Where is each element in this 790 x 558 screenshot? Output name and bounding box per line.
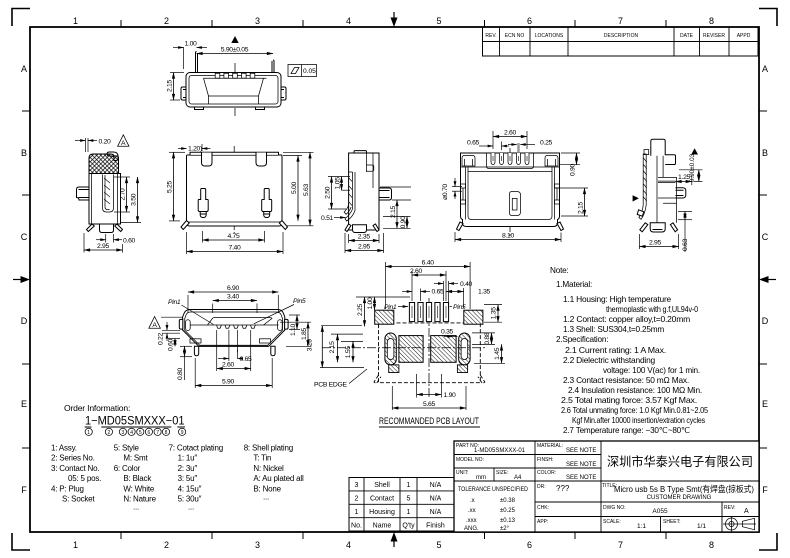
svg-text:6.90: 6.90 (227, 285, 240, 292)
svg-text:E: E (21, 399, 27, 409)
svg-text:2.15: 2.15 (578, 201, 585, 214)
svg-text:2: 2 (164, 540, 169, 550)
svg-text:2.70: 2.70 (120, 188, 127, 201)
svg-text:3: 3 (255, 16, 260, 26)
svg-text:Kgf Min.after 10000 insertion/: Kgf Min.after 10000 insertion/extration … (572, 416, 705, 425)
svg-text:1: 1 (407, 509, 411, 516)
svg-text:1: 1 (87, 430, 90, 436)
svg-text:DR:: DR: (537, 484, 546, 490)
svg-text:A: A (21, 64, 27, 74)
svg-text:RECOMMANDED PCB LAYOUT: RECOMMANDED PCB LAYOUT (379, 416, 479, 427)
svg-text:8: 8 (709, 540, 714, 550)
svg-text:1: Assy.: 1: Assy. (51, 444, 77, 453)
svg-text:1: 1 (407, 482, 411, 489)
svg-text:2.60: 2.60 (222, 362, 235, 369)
svg-text:3.20: 3.20 (307, 339, 314, 352)
svg-text:...: ... (188, 503, 194, 512)
svg-text:0.65: 0.65 (240, 356, 253, 363)
svg-text:DESCRIPTION: DESCRIPTION (604, 33, 639, 39)
svg-text:2.15: 2.15 (390, 205, 397, 218)
svg-text:2.7 Temperature range: −30℃~80: 2.7 Temperature range: −30℃~80℃ (563, 426, 690, 435)
svg-text:S: Socket: S: Socket (62, 495, 95, 504)
svg-text:No.: No. (351, 523, 362, 530)
svg-text:SIZE:: SIZE: (496, 470, 509, 476)
svg-text:1: 1u″: 1: 1u″ (178, 454, 198, 463)
svg-text:D: D (21, 316, 28, 326)
svg-text:0.60: 0.60 (168, 338, 175, 351)
svg-text:6: 6 (527, 16, 532, 26)
svg-text:Housing: Housing (369, 509, 395, 516)
svg-text:1.45: 1.45 (494, 347, 501, 360)
svg-text:8: Shell plating: 8: Shell plating (244, 444, 293, 453)
svg-text:2.35: 2.35 (358, 234, 371, 241)
svg-text:2.60: 2.60 (410, 268, 423, 275)
svg-text:0.20: 0.20 (99, 139, 112, 146)
svg-text:4: 4 (346, 540, 351, 550)
svg-text:±2°: ±2° (500, 526, 510, 532)
svg-text:B: Black: B: Black (123, 474, 152, 483)
svg-text:9: 9 (181, 430, 184, 436)
svg-text:Pin5: Pin5 (293, 298, 306, 305)
svg-text:2.Specification:: 2.Specification: (556, 335, 608, 344)
svg-text:1−MD05SMXXX−01: 1−MD05SMXXX−01 (85, 416, 185, 428)
svg-text:C: C (762, 232, 769, 242)
svg-text:Note:: Note: (550, 266, 569, 275)
svg-text:2.1 Current rating: 1 A Max.: 2.1 Current rating: 1 A Max. (565, 346, 666, 355)
svg-text:SEE NOTE: SEE NOTE (566, 448, 596, 454)
svg-text:2.95: 2.95 (649, 240, 662, 247)
svg-text:FINSH:: FINSH: (537, 457, 553, 463)
svg-text:.x: .x (470, 498, 475, 504)
svg-text:Micro usb 5s B Type Smt(有焊盘(掠板: Micro usb 5s B Type Smt(有焊盘(掠板式) (614, 484, 754, 494)
svg-text:0.63: 0.63 (682, 238, 689, 251)
svg-text:5: 5 (436, 540, 441, 550)
svg-text:1.2 Contact: copper alloy,t=0.: 1.2 Contact: copper alloy,t=0.20mm (563, 315, 690, 324)
svg-text:4: 15u″: 4: 15u″ (178, 484, 202, 493)
svg-text:A: A (744, 508, 749, 515)
svg-text:2.95: 2.95 (358, 244, 371, 251)
svg-text:A: A (121, 140, 126, 147)
svg-text:2.2 Dielectric withstanding: 2.2 Dielectric withstanding (563, 356, 656, 365)
svg-text:5: Style: 5: Style (114, 444, 140, 453)
svg-text:2: 2 (108, 430, 111, 436)
svg-text:2.3 Contact resistance: 50 mΩ: 2.3 Contact resistance: 50 mΩ Max. (563, 376, 689, 385)
svg-text:1.35: 1.35 (478, 289, 491, 296)
svg-text:±0.13: ±0.13 (500, 518, 516, 524)
svg-text:7: Cotact plating: 7: Cotact plating (169, 444, 223, 453)
svg-text:...: ... (133, 503, 139, 512)
svg-text:APPD: APPD (737, 33, 751, 39)
svg-text:2.6 Total unmating force: 1.0: 2.6 Total unmating force: 1.0 Kgf Min.0.… (561, 406, 709, 415)
svg-text:⌀0.70: ⌀0.70 (442, 184, 449, 200)
svg-text:3: 3 (122, 430, 125, 436)
svg-text:Finish: Finish (426, 523, 445, 530)
svg-text:5.63: 5.63 (303, 183, 310, 196)
svg-text:???: ??? (556, 484, 570, 493)
svg-text:6: 6 (148, 430, 151, 436)
svg-text:Order Information:: Order Information: (64, 403, 130, 413)
svg-text:0.65: 0.65 (432, 289, 445, 296)
svg-text:1.05: 1.05 (335, 177, 342, 190)
svg-text:3.50: 3.50 (131, 193, 138, 206)
svg-text:2: Series No.: 2: Series No. (51, 454, 95, 463)
svg-text:2.5 Total mating force: 3.57 K: 2.5 Total mating force: 3.57 Kgf Max. (561, 396, 697, 405)
svg-text:Pin1: Pin1 (168, 299, 181, 306)
svg-text:4: 4 (346, 16, 351, 26)
svg-text:Pin5: Pin5 (453, 304, 466, 311)
svg-text:.xxx: .xxx (466, 518, 477, 524)
svg-text:1.85: 1.85 (301, 327, 308, 340)
svg-text:0.22: 0.22 (158, 332, 165, 345)
svg-text:N: Nickel: N: Nickel (253, 464, 284, 473)
svg-text:2: 2 (164, 16, 169, 26)
svg-text:1.1 Housing: High temperature: 1.1 Housing: High temperature (563, 295, 672, 304)
svg-text:3: 3 (355, 482, 359, 489)
svg-text:4.75: 4.75 (227, 233, 240, 240)
svg-text:LOCATIONS: LOCATIONS (535, 33, 564, 39)
svg-text:REV:: REV: (724, 505, 735, 511)
svg-text:SCALE:: SCALE: (603, 519, 621, 525)
svg-text:0.40: 0.40 (460, 281, 473, 288)
svg-text:0.88: 0.88 (484, 332, 491, 345)
svg-text:0.51: 0.51 (321, 215, 334, 222)
svg-text:1.35: 1.35 (491, 307, 498, 320)
svg-text:8: 8 (709, 16, 714, 26)
svg-text:1: 1 (73, 540, 78, 550)
svg-text:MODEL NO:: MODEL NO: (456, 457, 484, 463)
svg-text:7.40: 7.40 (228, 245, 241, 252)
svg-text:1.10: 1.10 (290, 323, 297, 336)
svg-text:2: 2 (355, 496, 359, 503)
svg-text:F: F (762, 485, 768, 495)
svg-text:A4: A4 (514, 475, 522, 481)
svg-text:1.3 Shell: SUS304,t=0.25mm: 1.3 Shell: SUS304,t=0.25mm (563, 325, 664, 334)
svg-text:1: 1 (73, 16, 78, 26)
svg-text:2.60: 2.60 (504, 130, 517, 137)
svg-text:F: F (21, 485, 27, 495)
svg-text:05: 5 pos.: 05: 5 pos. (68, 474, 101, 483)
svg-text:0.90±0.03: 0.90±0.03 (689, 153, 696, 182)
svg-text:CHK:: CHK: (537, 505, 549, 511)
svg-text:ANG.: ANG. (464, 526, 479, 532)
svg-text:5.65: 5.65 (423, 401, 436, 408)
svg-text:ECN NO: ECN NO (505, 33, 525, 39)
svg-text:2.4 Insulation resistance: 100: 2.4 Insulation resistance: 100 MΩ Min. (568, 386, 702, 395)
svg-text:N/A: N/A (430, 482, 442, 489)
svg-text:7: 7 (618, 540, 623, 550)
svg-text:voltage: 100 V(ac) for 1 min.: voltage: 100 V(ac) for 1 min. (603, 366, 700, 375)
svg-text:2.15: 2.15 (167, 79, 174, 92)
svg-text:SHEET:: SHEET: (663, 519, 681, 525)
svg-text:5.90: 5.90 (222, 379, 235, 386)
svg-text:B: B (762, 148, 768, 158)
svg-text:D: D (762, 316, 769, 326)
svg-text:Shell: Shell (374, 482, 390, 489)
svg-text:1.90: 1.90 (444, 392, 457, 399)
svg-text:3: 5u″: 3: 5u″ (178, 474, 198, 483)
svg-text:8.10: 8.10 (502, 233, 515, 240)
svg-text:0.25: 0.25 (540, 140, 553, 147)
svg-text:±0.38: ±0.38 (500, 498, 516, 504)
svg-text:APP:: APP: (537, 519, 548, 525)
svg-text:A: A (152, 322, 157, 329)
svg-text:0.65: 0.65 (467, 140, 480, 147)
svg-text:1/1: 1/1 (697, 523, 706, 530)
svg-text:0.80: 0.80 (177, 367, 184, 380)
svg-text:0.90: 0.90 (570, 163, 577, 176)
svg-text:.xx: .xx (468, 508, 476, 514)
svg-text:N/A: N/A (430, 496, 442, 503)
svg-text:DWG NO:: DWG NO: (603, 505, 626, 511)
svg-text:±0.25: ±0.25 (500, 508, 516, 514)
svg-text:SEE NOTE: SEE NOTE (566, 462, 596, 468)
svg-text:5: 5 (436, 16, 441, 26)
svg-text:COLOR:: COLOR: (537, 470, 556, 476)
svg-text:PCB EDGE: PCB EDGE (314, 382, 347, 389)
svg-text:1.Material:: 1.Material: (556, 280, 592, 289)
svg-text:UNIT:: UNIT: (456, 470, 469, 476)
svg-text:1.00: 1.00 (367, 297, 374, 310)
svg-text:0.05: 0.05 (303, 68, 316, 75)
svg-text:thermoplastic with g.f,UL94v-0: thermoplastic with g.f,UL94v-0 (606, 305, 699, 314)
svg-text:2.25: 2.25 (357, 303, 364, 316)
svg-text:4: 4 (130, 430, 133, 436)
svg-text:Q'ty: Q'ty (402, 523, 415, 530)
svg-text:REVISER: REVISER (703, 33, 725, 39)
svg-text:A: Au plated all: A: Au plated all (253, 474, 304, 483)
svg-text:5.25: 5.25 (167, 180, 174, 193)
svg-text:TOLERANCE UNSPECIFIED: TOLERANCE UNSPECIFIED (458, 487, 529, 493)
svg-text:REV.: REV. (485, 33, 496, 39)
svg-text:C: C (21, 232, 28, 242)
svg-text:B: B (21, 148, 27, 158)
svg-text:3.40: 3.40 (227, 294, 240, 301)
svg-text:E: E (762, 399, 768, 409)
svg-text:3: 3 (255, 540, 260, 550)
svg-text:T: Tin: T: Tin (253, 454, 271, 463)
svg-text:5.00: 5.00 (291, 181, 298, 194)
svg-text:1-MD05SMXXX-01: 1-MD05SMXXX-01 (474, 448, 526, 454)
svg-text:Pin1: Pin1 (384, 304, 397, 311)
svg-text:6.40: 6.40 (422, 260, 435, 267)
svg-text:SEE NOTE: SEE NOTE (566, 475, 596, 481)
svg-text:MATERIAL:: MATERIAL: (537, 443, 563, 449)
svg-text:0.60: 0.60 (123, 237, 136, 244)
svg-text:2.15: 2.15 (329, 341, 336, 354)
svg-text:6: 6 (527, 540, 532, 550)
svg-text:W: White: W: White (123, 484, 154, 493)
svg-text:8: 8 (165, 430, 168, 436)
svg-text:4: P: Plug: 4: P: Plug (51, 484, 84, 493)
svg-text:6: Color: 6: Color (114, 464, 141, 473)
svg-text:0.90: 0.90 (400, 216, 407, 229)
svg-text:5: 5 (139, 430, 142, 436)
svg-text:1: 1 (355, 509, 359, 516)
svg-text:M: Smt: M: Smt (123, 454, 148, 463)
svg-text:mm: mm (476, 475, 486, 481)
svg-text:深圳市华泰兴电子有限公司: 深圳市华泰兴电子有限公司 (607, 454, 753, 469)
svg-text:3: Contact No.: 3: Contact No. (51, 464, 99, 473)
svg-text:A: A (762, 64, 768, 74)
svg-text:N: Nature: N: Nature (123, 495, 156, 504)
svg-text:A055: A055 (652, 508, 668, 515)
svg-text:5.90±0.05: 5.90±0.05 (221, 47, 249, 54)
svg-text:0.35: 0.35 (441, 329, 454, 336)
svg-text:N/A: N/A (430, 509, 442, 516)
svg-text:2.95: 2.95 (97, 243, 110, 250)
svg-text:1:1: 1:1 (637, 523, 646, 530)
svg-text:CUSTOMER DRAWING: CUSTOMER DRAWING (647, 495, 712, 501)
svg-text:2.50: 2.50 (325, 186, 332, 199)
svg-text:1.20): 1.20) (188, 146, 202, 153)
svg-text:2: 3u″: 2: 3u″ (178, 464, 198, 473)
svg-text:DATE: DATE (680, 33, 694, 39)
svg-text:5: 5 (407, 496, 411, 503)
svg-text:7: 7 (618, 16, 623, 26)
svg-text:1.00: 1.00 (185, 41, 198, 48)
svg-text:7: 7 (156, 430, 159, 436)
svg-text:Name: Name (373, 523, 392, 530)
svg-text:...: ... (263, 493, 269, 502)
svg-text:Contact: Contact (370, 496, 394, 503)
